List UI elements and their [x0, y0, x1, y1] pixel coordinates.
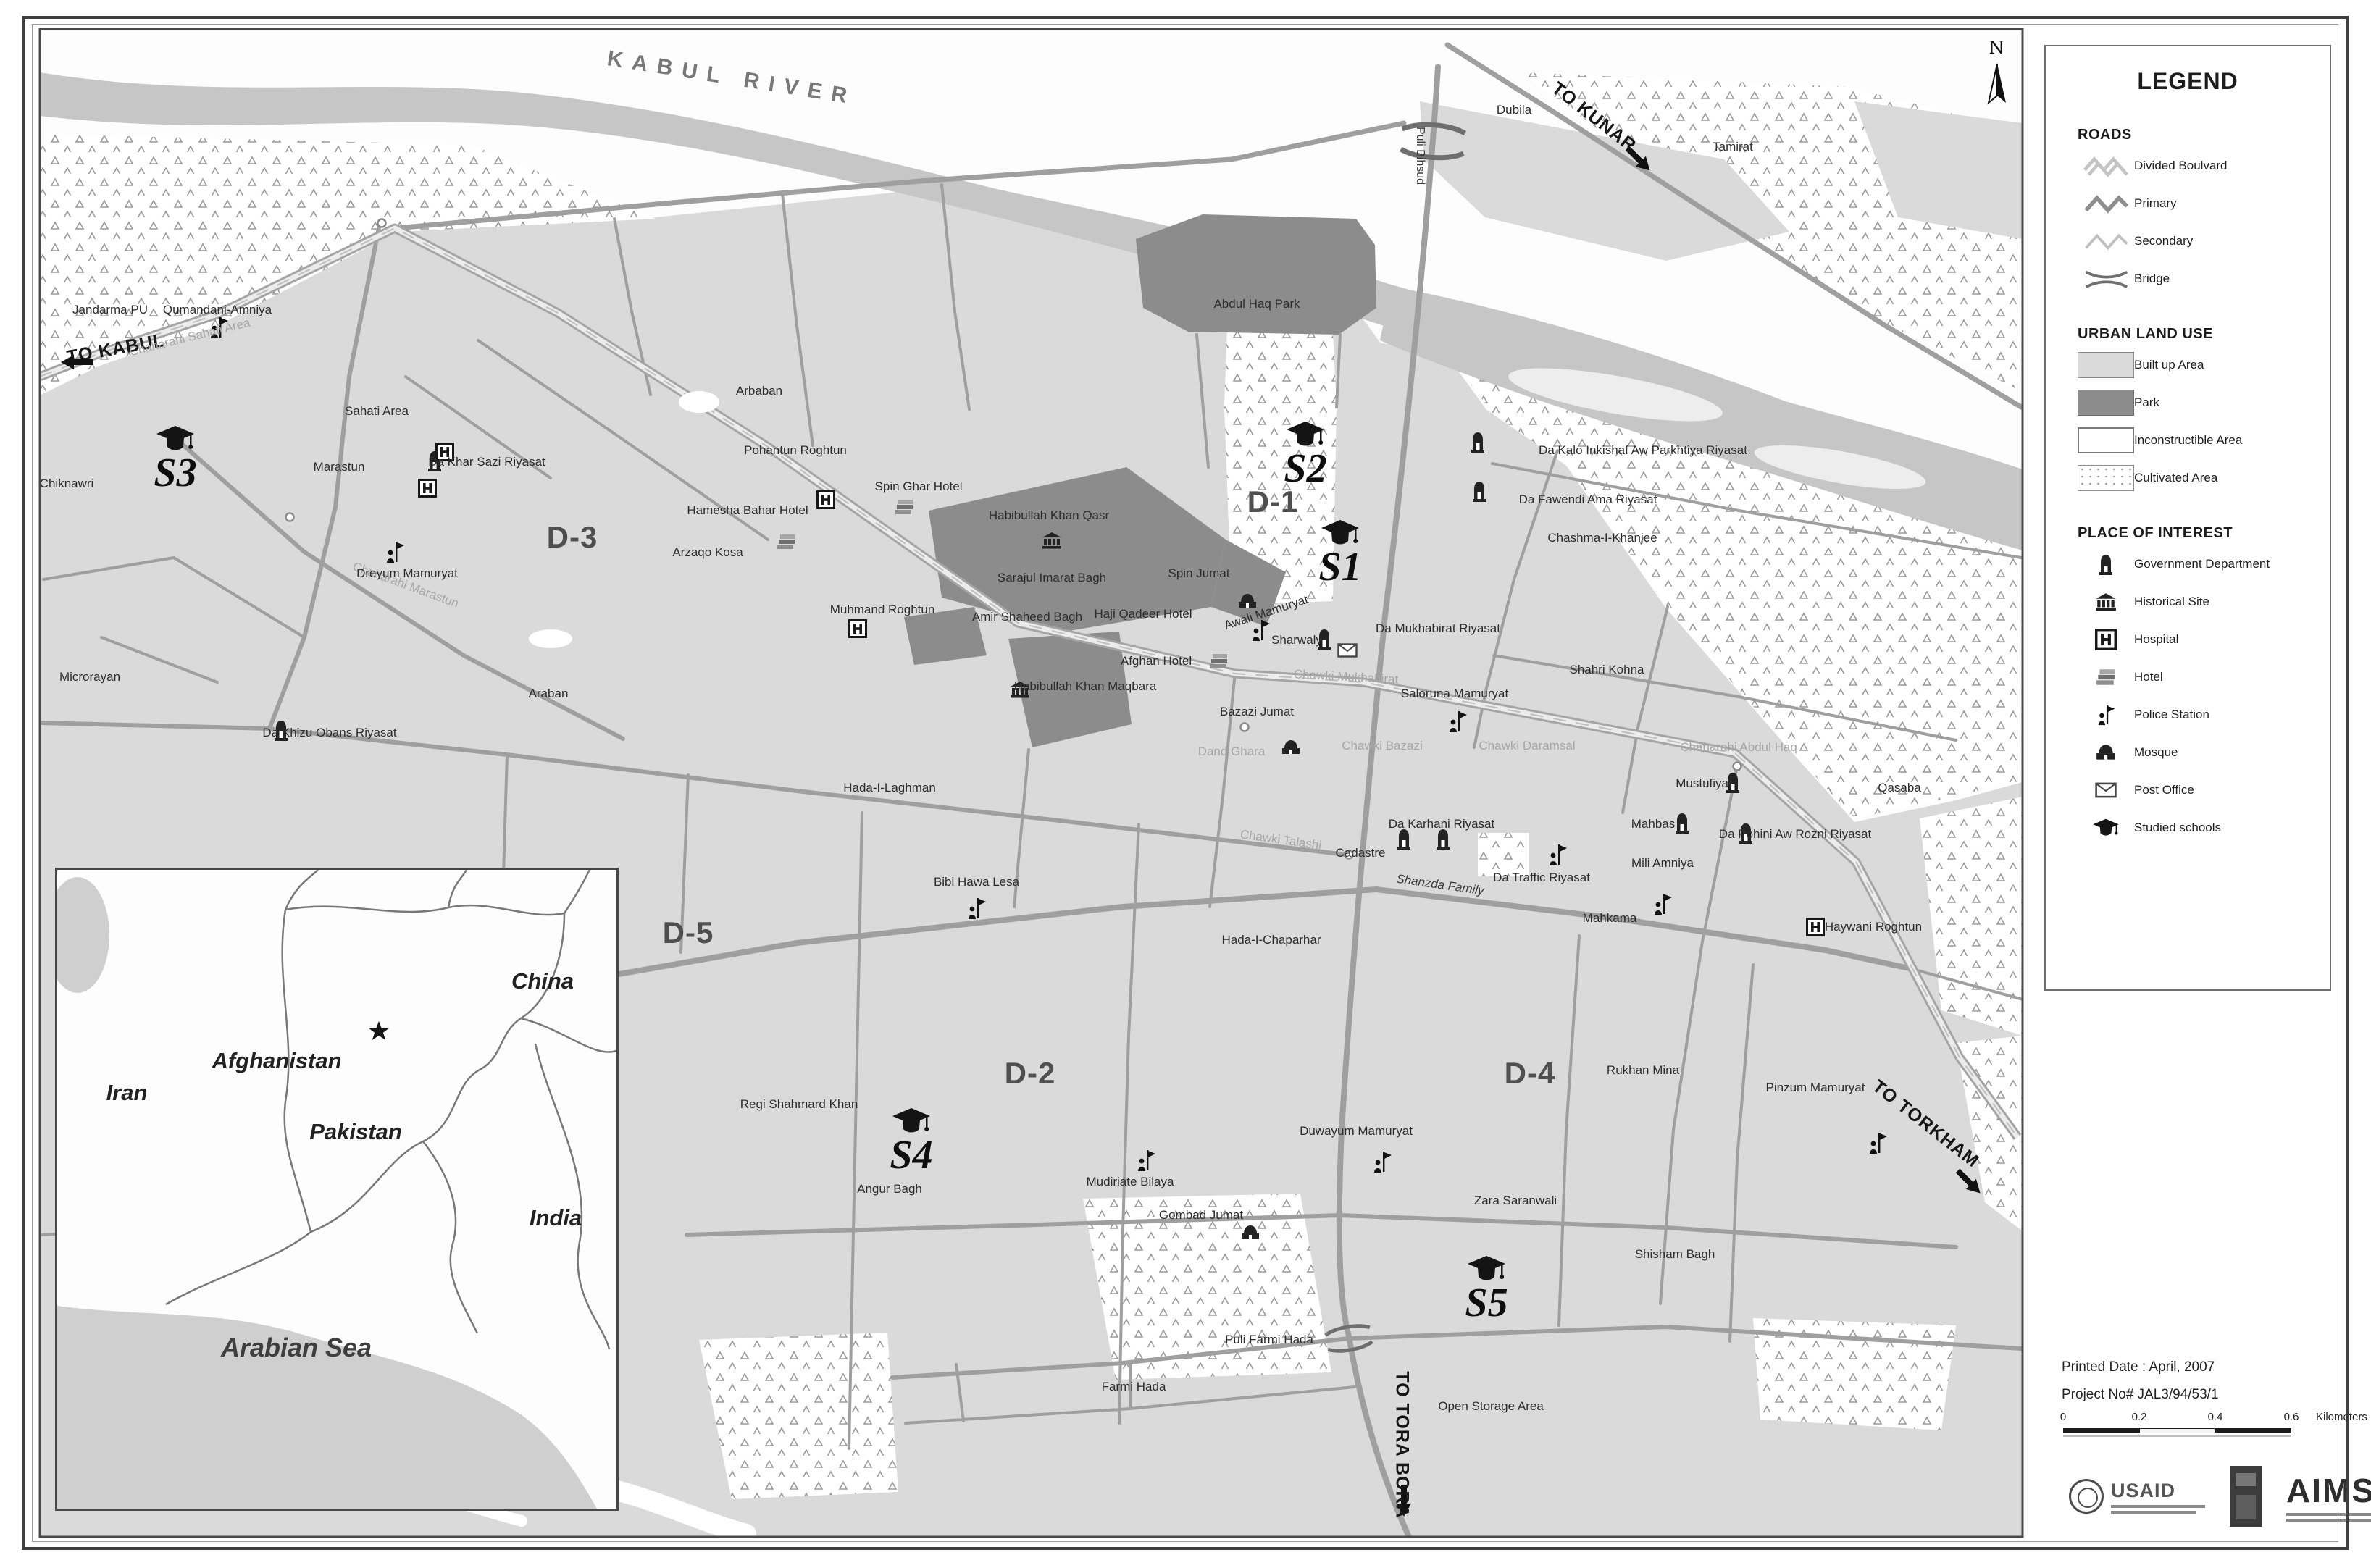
legend-item-label: Bridge — [2134, 272, 2170, 286]
legend-item: Historical Site — [2078, 587, 2330, 617]
scale-tick: 0.2 — [2132, 1411, 2147, 1423]
cultivated-legend-icon — [2078, 465, 2134, 491]
legend-item-label: Divided Boulvard — [2134, 159, 2228, 173]
postoffice-legend-icon — [2078, 779, 2134, 801]
legend-item: Built up Area — [2078, 350, 2330, 380]
usaid-caption-bar — [2111, 1505, 2205, 1508]
legend-item-label: Hospital — [2134, 632, 2178, 647]
aims-logo: AIMS — [2286, 1462, 2371, 1531]
inset-map-graphics — [57, 870, 616, 1509]
legend-section-title: ROADS — [2078, 127, 2330, 143]
legend-item-label: Studied schools — [2134, 821, 2221, 835]
legend-panel: LEGEND ROADSDivided BoulvardPrimarySecon… — [2044, 45, 2331, 991]
legend-item: Inconstructible Area — [2078, 425, 2330, 456]
hospital-icon — [419, 480, 436, 497]
bridge-legend-icon — [2078, 267, 2134, 291]
usaid-text: USAID — [2111, 1480, 2175, 1501]
legend-item: Hotel — [2078, 662, 2330, 692]
police-legend-icon — [2078, 704, 2134, 726]
printed-date: Printed Date : April, 2007 — [2062, 1359, 2215, 1375]
legend-item: Divided Boulvard — [2078, 151, 2330, 181]
scale-tick: 0 — [2060, 1411, 2066, 1423]
scale-segment — [2139, 1428, 2215, 1433]
legend-title: LEGEND — [2046, 68, 2330, 95]
hospital-icon — [1807, 919, 1824, 936]
scale-segment — [2215, 1428, 2291, 1433]
legend-item-label: Mosque — [2134, 745, 2178, 760]
legend-item: Police Station — [2078, 700, 2330, 730]
scale-tick: 0.6 — [2284, 1411, 2299, 1423]
scale-segment — [2063, 1428, 2139, 1433]
school-legend-icon — [2078, 817, 2134, 839]
hotel-legend-icon — [2078, 666, 2134, 688]
hospital-icon — [437, 444, 453, 461]
legend-section-title: PLACE OF INTEREST — [2078, 525, 2330, 542]
aims-text: AIMS — [2286, 1472, 2371, 1509]
road-secondary-legend-icon — [2078, 229, 2134, 253]
scale-rail — [2063, 1435, 2291, 1437]
legend-item-label: Primary — [2134, 196, 2177, 211]
legend-item-label: Police Station — [2134, 708, 2209, 722]
government-legend-icon — [2078, 553, 2134, 575]
legend-sections: ROADSDivided BoulvardPrimarySecondaryBri… — [2046, 127, 2330, 843]
map-sheet: KABUL RIVERNJandarma PUQumandani-AmniyaT… — [0, 0, 2371, 1568]
hospital-icon — [850, 621, 866, 637]
scale-unit: Kilometers — [2316, 1411, 2367, 1423]
postoffice-icon — [1339, 645, 1357, 657]
usaid-logo: USAID — [2069, 1479, 2205, 1514]
aims-caption-bar — [2286, 1519, 2371, 1522]
hospital-legend-icon — [2078, 629, 2134, 650]
aims-caption-bar — [2286, 1513, 2371, 1516]
undp-logo — [2230, 1466, 2262, 1527]
builtup-legend-icon — [2078, 352, 2134, 378]
usaid-caption-bar — [2111, 1511, 2196, 1514]
node-icon — [1734, 763, 1741, 771]
legend-item: Studied schools — [2078, 813, 2330, 843]
legend-item: Government Department — [2078, 549, 2330, 579]
legend-item: Mosque — [2078, 737, 2330, 768]
legend-item-label: Park — [2134, 395, 2159, 410]
node-icon — [286, 513, 294, 521]
project-number: Project No# JAL3/94/53/1 — [2062, 1387, 2219, 1403]
legend-item-label: Inconstructible Area — [2134, 433, 2242, 448]
legend-item-label: Historical Site — [2134, 595, 2209, 609]
node-icon — [1241, 724, 1249, 731]
legend-item-label: Hotel — [2134, 670, 2163, 684]
usaid-emblem-icon — [2069, 1479, 2104, 1514]
logos: USAID AIMS — [2069, 1462, 2371, 1531]
legend-item: Post Office — [2078, 775, 2330, 805]
inset-map: ChinaIranAfghanistanPakistanIndiaArabian… — [55, 868, 619, 1511]
legend-item-label: Secondary — [2134, 234, 2193, 248]
legend-section-title: URBAN LAND USE — [2078, 326, 2330, 343]
legend-item-label: Cultivated Area — [2134, 471, 2217, 485]
legend-item-label: Post Office — [2134, 783, 2194, 797]
road-divided-legend-icon — [2078, 154, 2134, 178]
scale-bar: 00.20.40.6Kilometers — [2063, 1411, 2324, 1444]
hospital-icon — [818, 492, 835, 508]
road-primary-legend-icon — [2078, 191, 2134, 216]
legend-item: Hospital — [2078, 624, 2330, 655]
legend-item-label: Built up Area — [2134, 358, 2204, 372]
park-legend-icon — [2078, 390, 2134, 416]
legend-item: Cultivated Area — [2078, 463, 2330, 493]
legend-item: Secondary — [2078, 226, 2330, 256]
scale-tick: 0.4 — [2208, 1411, 2223, 1423]
node-icon — [1345, 851, 1353, 859]
legend-item: Bridge — [2078, 264, 2330, 294]
legend-item-label: Government Department — [2134, 557, 2270, 571]
inconstructible-legend-icon — [2078, 427, 2134, 453]
mosque-legend-icon — [2078, 742, 2134, 763]
historical-legend-icon — [2078, 591, 2134, 613]
legend-item: Park — [2078, 387, 2330, 418]
legend-item: Primary — [2078, 188, 2330, 219]
node-icon — [378, 219, 386, 227]
